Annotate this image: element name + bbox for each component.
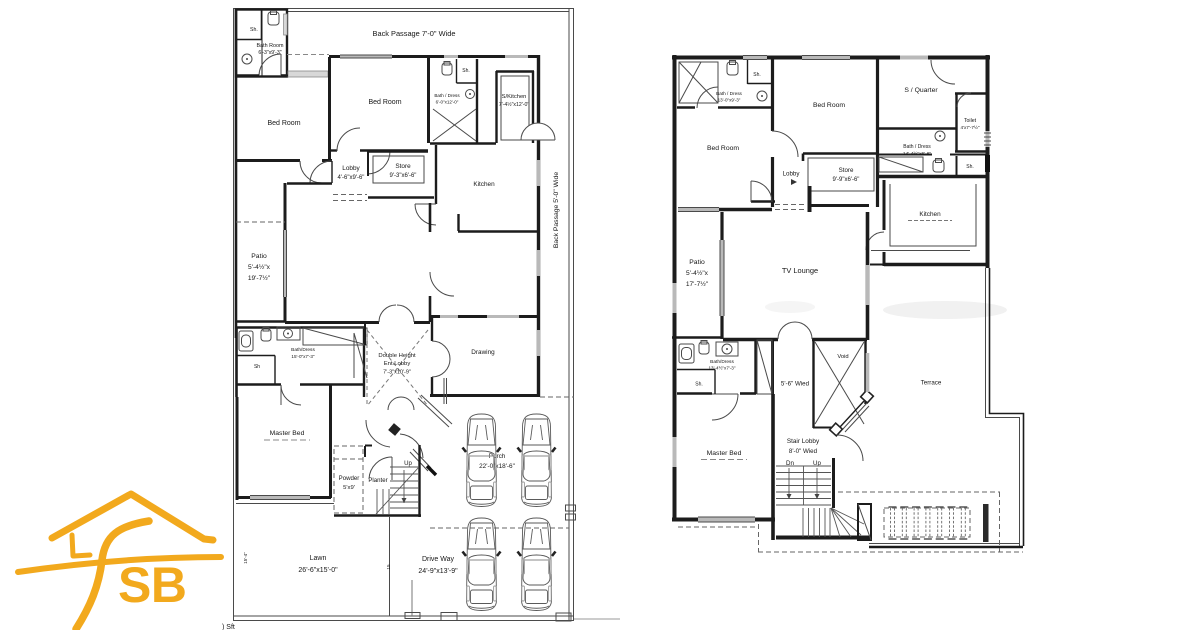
svg-text:S/Kitchen: S/Kitchen bbox=[502, 94, 527, 100]
svg-text:Kitchen: Kitchen bbox=[919, 211, 941, 218]
svg-text:Bed Room: Bed Room bbox=[707, 145, 739, 152]
svg-text:Bed Room: Bed Room bbox=[813, 102, 845, 109]
svg-text:13'-0"x9'-3": 13'-0"x9'-3" bbox=[718, 98, 741, 103]
svg-text:Patio: Patio bbox=[251, 253, 267, 260]
svg-text:13'-4½"x7'-3": 13'-4½"x7'-3" bbox=[709, 365, 736, 371]
svg-text:Stair Lobby: Stair Lobby bbox=[787, 438, 820, 445]
svg-text:17'-7½": 17'-7½" bbox=[686, 280, 709, 288]
svg-text:Back Passage 7'-0" Wide: Back Passage 7'-0" Wide bbox=[373, 29, 456, 38]
svg-text:Powder: Powder bbox=[339, 475, 360, 482]
svg-text:Master Bed: Master Bed bbox=[707, 450, 742, 457]
svg-text:Bath / Dress: Bath / Dress bbox=[434, 93, 460, 98]
svg-text:Lobby: Lobby bbox=[342, 165, 360, 172]
svg-text:Store: Store bbox=[395, 163, 411, 170]
svg-text:6'-0"x12'-0": 6'-0"x12'-0" bbox=[436, 100, 459, 105]
svg-text:9'-9"x6'-6": 9'-9"x6'-6" bbox=[833, 177, 860, 183]
svg-text:Drawing: Drawing bbox=[471, 349, 495, 356]
svg-text:5'-4½"x: 5'-4½"x bbox=[686, 269, 709, 277]
svg-text:Up: Up bbox=[404, 460, 412, 467]
svg-text:Patio: Patio bbox=[689, 259, 705, 266]
svg-text:Bath Room: Bath Room bbox=[257, 43, 284, 49]
svg-text:Bed Room: Bed Room bbox=[368, 99, 401, 106]
svg-text:Porch: Porch bbox=[489, 453, 506, 460]
svg-text:Kitchen: Kitchen bbox=[473, 181, 495, 188]
svg-text:Ent.Lobby: Ent.Lobby bbox=[384, 361, 411, 367]
svg-text:Bath/Dress: Bath/Dress bbox=[291, 347, 315, 353]
svg-text:Double Height: Double Height bbox=[378, 353, 416, 359]
svg-text:5'-6" Wied: 5'-6" Wied bbox=[781, 381, 810, 388]
svg-text:Terrace: Terrace bbox=[921, 380, 942, 387]
svg-text:15: 15 bbox=[386, 564, 391, 570]
svg-text:) Sft: ) Sft bbox=[222, 624, 235, 630]
svg-text:5'-4½"x: 5'-4½"x bbox=[248, 263, 271, 271]
svg-text:14'-4½"x6'-6": 14'-4½"x6'-6" bbox=[903, 150, 931, 157]
svg-text:S / Quarter: S / Quarter bbox=[904, 87, 938, 94]
svg-text:7'-3"x10'-9": 7'-3"x10'-9" bbox=[383, 370, 411, 376]
svg-text:7'-4½"x12'-0": 7'-4½"x12'-0" bbox=[499, 101, 530, 108]
svg-text:Void: Void bbox=[837, 354, 848, 360]
svg-text:4'-6"x9'-6": 4'-6"x9'-6" bbox=[338, 175, 365, 181]
svg-text:Lobby: Lobby bbox=[783, 171, 801, 178]
svg-text:Store: Store bbox=[839, 167, 854, 174]
svg-text:Bath / Dress: Bath / Dress bbox=[903, 144, 931, 150]
svg-text:Drive Way: Drive Way bbox=[422, 556, 455, 563]
svg-text:15'-0"x7'-3": 15'-0"x7'-3" bbox=[291, 354, 315, 359]
svg-text:Bath / Dress: Bath / Dress bbox=[716, 91, 742, 96]
svg-text:SB: SB bbox=[118, 557, 186, 613]
svg-text:Bath/Dress: Bath/Dress bbox=[710, 359, 734, 365]
svg-text:Sh.: Sh. bbox=[695, 382, 703, 388]
svg-text:Toilet: Toilet bbox=[964, 118, 977, 124]
svg-text:19'-7½": 19'-7½" bbox=[248, 274, 271, 282]
svg-text:Master Bed: Master Bed bbox=[270, 430, 305, 437]
svg-text:Sh: Sh bbox=[254, 364, 260, 370]
svg-text:Sh.: Sh. bbox=[250, 27, 258, 33]
svg-text:Sh.: Sh. bbox=[966, 164, 974, 170]
svg-text:Lawn: Lawn bbox=[310, 555, 327, 562]
svg-text:15'-4": 15'-4" bbox=[243, 552, 248, 564]
svg-text:TV Lounge: TV Lounge bbox=[782, 266, 818, 275]
svg-text:26'-6"x15'-0": 26'-6"x15'-0" bbox=[298, 567, 338, 574]
svg-text:22'-0"x18'-6": 22'-0"x18'-6" bbox=[479, 463, 515, 470]
svg-text:Bed Room: Bed Room bbox=[267, 120, 300, 127]
svg-text:Back Passage 5'-0" Wide: Back Passage 5'-0" Wide bbox=[553, 172, 560, 248]
svg-text:8'-0" Wied: 8'-0" Wied bbox=[789, 448, 818, 455]
svg-text:5'x9': 5'x9' bbox=[343, 485, 355, 491]
svg-text:Planter: Planter bbox=[368, 477, 387, 484]
svg-text:24'-9"x13'-9": 24'-9"x13'-9" bbox=[418, 568, 458, 575]
svg-text:4'x7'-7½": 4'x7'-7½" bbox=[960, 124, 979, 130]
svg-text:6'-3"x9'-3": 6'-3"x9'-3" bbox=[258, 50, 281, 56]
svg-text:Sh.: Sh. bbox=[462, 68, 470, 74]
svg-text:Sh.: Sh. bbox=[753, 72, 761, 78]
svg-text:9'-3"x6'-6": 9'-3"x6'-6" bbox=[390, 173, 417, 179]
